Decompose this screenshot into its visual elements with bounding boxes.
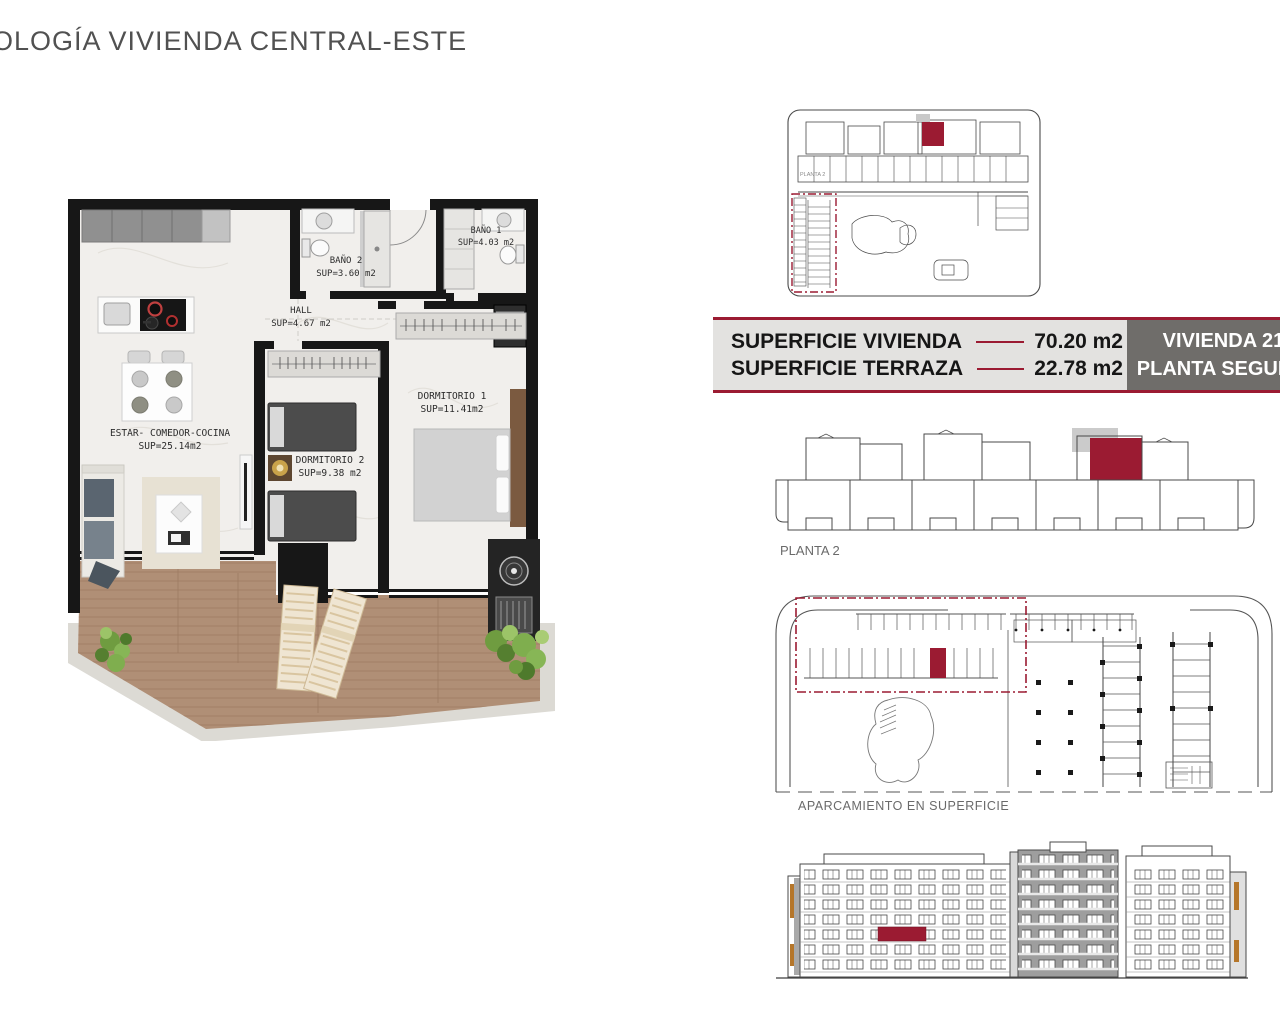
room-label-hall-name: HALL bbox=[290, 306, 312, 316]
parking-svg: APARCAMIENTO EN SUPERFICIE bbox=[768, 582, 1280, 817]
sofa bbox=[82, 465, 124, 589]
headboard-wall bbox=[510, 389, 526, 527]
unit-badge-line2: PLANTA SEGUNDA bbox=[1137, 355, 1280, 383]
room-label-dorm1-sup: SUP=11.41m2 bbox=[421, 404, 484, 415]
room-label-bano2-sup: SUP=3.60 m2 bbox=[316, 269, 376, 279]
info-bar: SUPERFICIE VIVIENDA 70.20 m2 SUPERFICIE … bbox=[713, 317, 1280, 393]
surface-row-terraza: SUPERFICIE TERRAZA 22.78 m2 bbox=[731, 357, 1123, 381]
planta2-label: PLANTA 2 bbox=[780, 543, 840, 558]
room-label-bano1-name: BAÑO 1 bbox=[471, 225, 502, 236]
planta2-drawing: PLANTA 2 bbox=[772, 422, 1280, 567]
room-label-living-sup: SUP=25.14m2 bbox=[139, 441, 202, 452]
elevation-drawing bbox=[772, 822, 1252, 994]
left-building bbox=[788, 854, 1010, 977]
site-gray-cap bbox=[916, 114, 930, 122]
coffee-table bbox=[142, 477, 220, 569]
elevation-highlighted-unit bbox=[878, 927, 926, 941]
site-highlighted-unit bbox=[922, 122, 944, 146]
planta2-svg: PLANTA 2 bbox=[772, 422, 1280, 567]
surface-label: SUPERFICIE VIVIENDA bbox=[731, 330, 962, 354]
room-label-dorm2-sup: SUP=9.38 m2 bbox=[299, 468, 362, 479]
room-label-dorm2-name: DORMITORIO 2 bbox=[296, 455, 365, 466]
unit-badge: VIVIENDA 212 PLANTA SEGUNDA bbox=[1127, 320, 1280, 390]
surface-value: 22.78 m2 bbox=[1034, 357, 1123, 381]
apartment-floor-plan: ESTAR- COMEDOR-COCINA SUP=25.14m2 BAÑO 2… bbox=[58, 193, 563, 741]
room-label-living-name: ESTAR- COMEDOR-COCINA bbox=[110, 428, 230, 439]
site-plan-label: PLANTA 2 bbox=[800, 172, 825, 178]
room-label-hall-sup: SUP=4.67 m2 bbox=[271, 319, 331, 329]
planta2-highlighted-unit bbox=[1090, 438, 1142, 480]
site-plan-svg: PLANTA 2 bbox=[782, 96, 1057, 308]
room-label-bano2-name: BAÑO 2 bbox=[330, 255, 363, 266]
right-building bbox=[1126, 846, 1246, 977]
parking-columns bbox=[1015, 629, 1213, 777]
parking-label: APARCAMIENTO EN SUPERFICIE bbox=[798, 799, 1009, 813]
tv-unit bbox=[240, 455, 252, 529]
unit-badge-line1: VIVIENDA 212 bbox=[1163, 327, 1280, 355]
room-label-bano1-sup: SUP=4.03 m2 bbox=[458, 238, 514, 248]
surface-row-vivienda: SUPERFICIE VIVIENDA 70.20 m2 bbox=[731, 330, 1123, 354]
surface-value: 70.20 m2 bbox=[1034, 330, 1123, 354]
leader-line bbox=[976, 341, 1024, 343]
page-title: OLOGÍA VIVIENDA CENTRAL-ESTE bbox=[0, 26, 467, 57]
surface-label: SUPERFICIE TERRAZA bbox=[731, 357, 963, 381]
elevation-svg bbox=[772, 822, 1252, 994]
site-plan: PLANTA 2 bbox=[782, 96, 1057, 308]
center-building bbox=[1010, 842, 1118, 977]
surface-table: SUPERFICIE VIVIENDA 70.20 m2 SUPERFICIE … bbox=[713, 320, 1127, 390]
leader-line bbox=[977, 368, 1024, 370]
parking-drawing: APARCAMIENTO EN SUPERFICIE bbox=[768, 582, 1280, 817]
room-label-dorm1-name: DORMITORIO 1 bbox=[418, 391, 487, 402]
parking-highlighted-stall bbox=[930, 648, 946, 678]
outdoor-sink-unit bbox=[488, 539, 540, 641]
floor-plan-svg: ESTAR- COMEDOR-COCINA SUP=25.14m2 BAÑO 2… bbox=[58, 193, 563, 741]
